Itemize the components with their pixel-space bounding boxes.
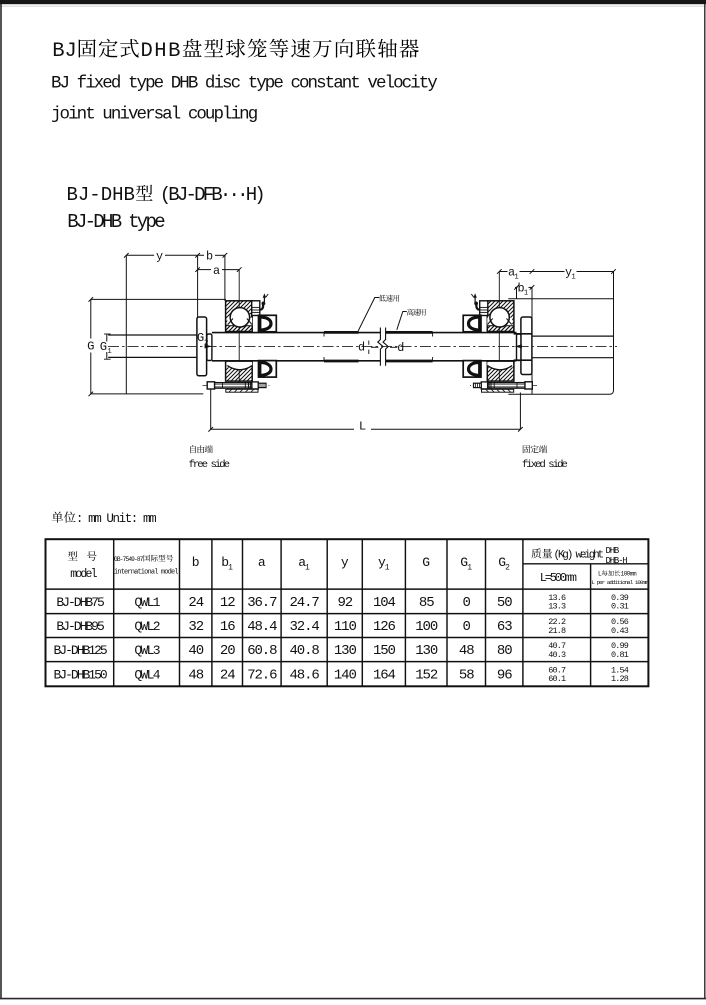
- svg-text:L=500mm: L=500mm: [540, 571, 577, 585]
- svg-text:1: 1: [107, 348, 111, 356]
- svg-text:0: 0: [463, 595, 471, 611]
- svg-text:y: y: [341, 555, 349, 570]
- svg-text:a: a: [258, 555, 266, 570]
- svg-text:48.4: 48.4: [247, 619, 277, 635]
- svg-text:(Kg) weight: (Kg) weight: [554, 550, 604, 562]
- svg-text:GB-7549-87: GB-7549-87: [114, 556, 144, 563]
- svg-text:40.3: 40.3: [548, 650, 566, 660]
- svg-text:36.7: 36.7: [247, 595, 277, 611]
- svg-text:G: G: [422, 555, 430, 570]
- svg-text:50: 50: [497, 595, 512, 611]
- svg-text:b: b: [192, 555, 200, 570]
- svg-text:100mm: 100mm: [621, 571, 637, 578]
- svg-text:international model: international model: [114, 569, 178, 577]
- svg-text:BJ fixed type DHB disc type co: BJ fixed type DHB disc type constant vel…: [51, 74, 437, 94]
- svg-text:1: 1: [524, 289, 528, 297]
- svg-text:QWL1: QWL1: [134, 595, 160, 610]
- svg-text:d: d: [358, 341, 365, 355]
- svg-text:32.4: 32.4: [289, 619, 319, 635]
- svg-text:joint universal coupling: joint universal coupling: [51, 105, 257, 125]
- svg-text:0: 0: [463, 619, 471, 635]
- svg-text:QWL2: QWL2: [134, 619, 159, 634]
- svg-text:G: G: [87, 340, 94, 354]
- svg-text:BJ-DHB75: BJ-DHB75: [56, 595, 104, 610]
- svg-text:BJ-DHB95: BJ-DHB95: [56, 619, 104, 634]
- svg-text:92: 92: [337, 595, 352, 611]
- svg-text:1: 1: [305, 563, 310, 572]
- svg-text:24: 24: [188, 595, 203, 611]
- svg-text:20: 20: [220, 643, 235, 659]
- svg-text:60.1: 60.1: [548, 674, 566, 684]
- svg-text:QWL4: QWL4: [134, 668, 160, 683]
- svg-text:DHB-H: DHB-H: [606, 556, 628, 566]
- svg-text:DHB: DHB: [141, 40, 182, 63]
- svg-text:BJ: BJ: [52, 40, 77, 63]
- svg-text:0.81: 0.81: [611, 650, 629, 660]
- svg-text:63: 63: [497, 619, 512, 635]
- svg-text:1: 1: [228, 563, 233, 572]
- svg-text:96: 96: [497, 668, 512, 684]
- svg-text:1: 1: [571, 273, 575, 281]
- svg-text:BJ-DHB125: BJ-DHB125: [53, 643, 106, 658]
- svg-text:2: 2: [505, 563, 510, 572]
- svg-text:free side: free side: [189, 459, 230, 471]
- svg-text:2: 2: [204, 339, 208, 347]
- svg-text:150: 150: [373, 643, 396, 659]
- svg-text:48: 48: [459, 643, 474, 659]
- svg-text:130: 130: [334, 643, 357, 659]
- svg-text:13.3: 13.3: [548, 602, 566, 612]
- svg-text:a: a: [213, 264, 220, 278]
- svg-text:104: 104: [373, 595, 396, 611]
- svg-text:(BJ-DFB···H): (BJ-DFB···H): [160, 184, 264, 206]
- svg-text:21.8: 21.8: [548, 626, 566, 636]
- svg-text:16: 16: [220, 619, 235, 635]
- svg-text:24.7: 24.7: [289, 595, 319, 611]
- svg-text:72.6: 72.6: [247, 668, 277, 684]
- svg-text:130: 130: [415, 643, 438, 659]
- svg-text:d: d: [397, 341, 404, 355]
- svg-text:48.6: 48.6: [289, 668, 319, 684]
- svg-text:b: b: [206, 249, 213, 263]
- svg-text:fixed side: fixed side: [522, 459, 568, 471]
- svg-text:40.8: 40.8: [289, 643, 319, 659]
- svg-text:32: 32: [188, 619, 203, 635]
- svg-text:0.31: 0.31: [611, 602, 629, 612]
- svg-text:1.28: 1.28: [611, 674, 629, 684]
- svg-text:60.8: 60.8: [247, 643, 277, 659]
- svg-text:164: 164: [373, 668, 396, 684]
- svg-text:152: 152: [415, 668, 438, 684]
- svg-text:DHB: DHB: [606, 546, 620, 556]
- svg-text:BJ-DHB: BJ-DHB: [67, 184, 135, 206]
- svg-text:L: L: [359, 420, 366, 434]
- svg-text:85: 85: [419, 595, 434, 611]
- svg-text:BJ-DHB type: BJ-DHB type: [67, 211, 165, 233]
- svg-text:80: 80: [497, 643, 512, 659]
- svg-text:1: 1: [514, 273, 518, 281]
- svg-text:G: G: [197, 331, 204, 345]
- svg-text:: mm Unit: mm: : mm Unit: mm: [76, 512, 156, 526]
- svg-text:1: 1: [467, 563, 472, 572]
- svg-text:L per additional 100mm: L per additional 100mm: [592, 579, 650, 586]
- svg-text:12: 12: [220, 595, 235, 611]
- svg-text:110: 110: [334, 619, 357, 635]
- svg-text:24: 24: [220, 668, 235, 684]
- svg-text:140: 140: [334, 668, 357, 684]
- svg-text:100: 100: [415, 619, 438, 635]
- svg-text:0.43: 0.43: [611, 626, 629, 636]
- svg-text:58: 58: [459, 668, 474, 684]
- svg-text:BJ-DHB150: BJ-DHB150: [53, 668, 106, 683]
- svg-text:126: 126: [373, 619, 396, 635]
- svg-text:G: G: [100, 340, 107, 354]
- svg-text:y: y: [156, 249, 163, 263]
- svg-text:40: 40: [188, 643, 203, 659]
- svg-text:QWL3: QWL3: [134, 643, 159, 658]
- svg-text:model: model: [70, 568, 97, 581]
- svg-text:48: 48: [188, 668, 203, 684]
- svg-text:1: 1: [385, 563, 390, 572]
